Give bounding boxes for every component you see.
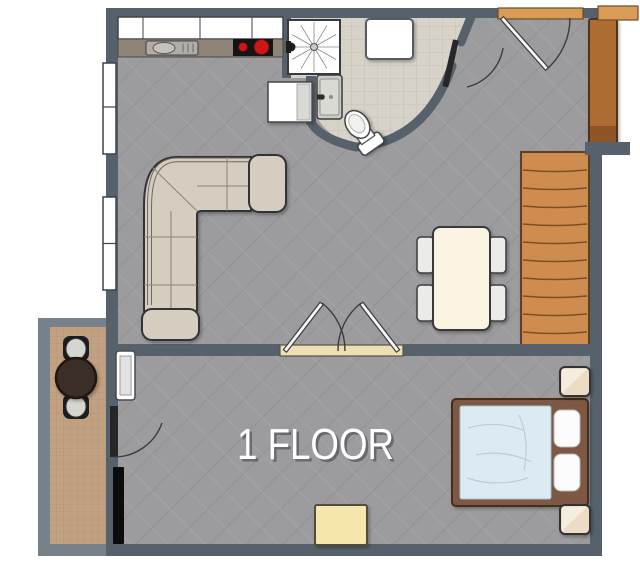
bed — [452, 399, 588, 506]
floor-plan-canvas: 1 FLOOR 1 FLOOR — [0, 0, 640, 571]
wall-balcony-bottom — [38, 544, 106, 556]
shower-drain — [311, 44, 318, 51]
dining-chair-bottom-right — [489, 285, 506, 321]
sofa-armrest-bottom — [142, 309, 199, 340]
fridge-cabinet-door — [297, 84, 310, 120]
dining-chair-top-right — [489, 237, 506, 273]
dining-chair-top-left — [417, 237, 434, 273]
wall-tv — [113, 467, 124, 544]
window-left-upper — [103, 63, 116, 154]
burner-large — [254, 40, 269, 55]
kitchen-sink-basin — [153, 43, 175, 54]
double-door-sill — [280, 345, 403, 356]
fridge-cabinet — [268, 82, 312, 122]
floor-plan-page: 1 FLOOR 1 FLOOR — [0, 0, 640, 571]
balcony-door-leaf — [110, 406, 118, 457]
wall-balcony-top — [38, 318, 106, 327]
bed-pillow-top — [554, 410, 580, 447]
bed-pillow-bottom — [554, 454, 580, 491]
corner-landing — [598, 6, 638, 20]
balcony-chair-top-cushion — [66, 339, 86, 360]
bathroom-sink-faucet — [319, 94, 325, 100]
burner-small — [239, 43, 248, 52]
washing-machine — [366, 19, 413, 59]
stairs — [521, 152, 589, 347]
shower — [286, 20, 340, 74]
wall-right — [590, 148, 602, 556]
stairs-flight — [521, 152, 589, 347]
kitchen-sink — [146, 41, 198, 55]
wall-step-top-right — [585, 142, 630, 155]
nightstand-top — [560, 367, 590, 396]
dining-chair-bottom-left — [417, 285, 434, 321]
entry-threshold — [498, 8, 583, 19]
bathroom-sink — [317, 75, 343, 119]
shower-head-icon — [287, 43, 296, 52]
radiator — [116, 351, 135, 400]
bathroom-sink-drain — [329, 95, 333, 99]
dining-table — [433, 227, 490, 330]
wardrobe — [589, 19, 617, 144]
radiator-inner — [120, 356, 131, 395]
wall-divider-right — [403, 344, 590, 356]
sofa-armrest-right — [249, 155, 286, 212]
ottoman — [315, 505, 367, 545]
bed-duvet — [460, 406, 551, 499]
wardrobe-body — [589, 19, 617, 144]
balcony-table — [56, 358, 96, 398]
nightstand-bottom — [560, 505, 590, 534]
floor-label: 1 FLOOR — [237, 420, 394, 469]
cooktop — [233, 39, 273, 56]
wall-balcony-left — [38, 318, 50, 556]
wardrobe-base — [590, 126, 616, 143]
